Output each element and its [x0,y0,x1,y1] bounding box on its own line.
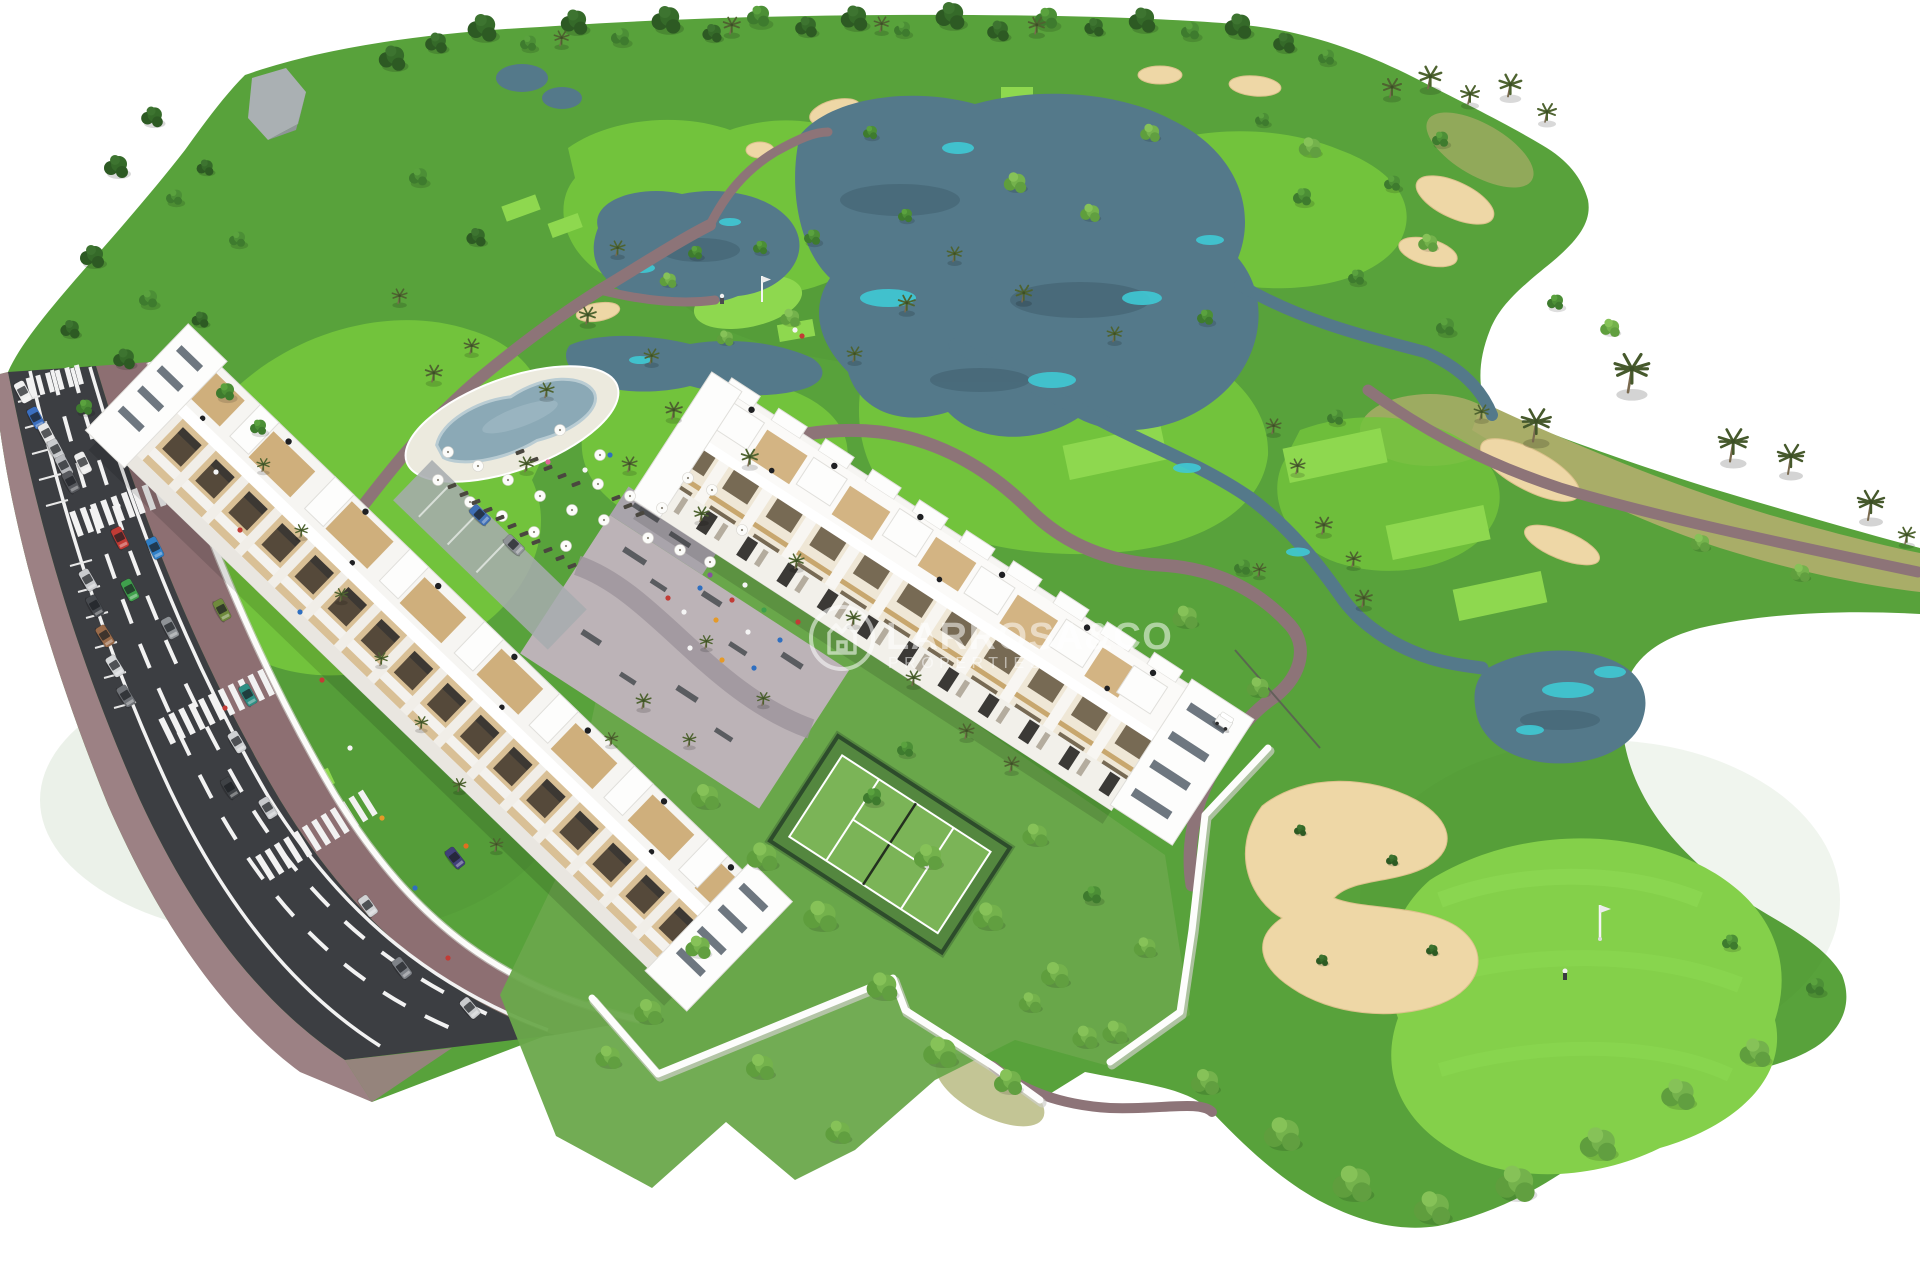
palm-tree [1538,104,1556,128]
person [379,815,384,820]
person [222,705,227,710]
person [707,572,712,577]
golfer-practice-green [720,294,724,304]
tree [468,14,500,43]
watermark-subtitle: PROPERTIES [888,655,1046,672]
parasol [657,503,668,514]
person [719,657,724,662]
person [412,885,417,890]
parasol [555,425,566,436]
person [742,582,747,587]
person [347,745,352,750]
person [697,585,702,590]
palm-tree [1858,491,1884,527]
parasol [593,479,604,490]
parasol [443,447,454,458]
palm-tree [1719,430,1748,469]
tree [141,107,165,129]
person [681,609,686,614]
parasol [595,450,606,461]
palm-tree [1461,86,1479,110]
palm-tree [1420,67,1442,95]
golfer-main-green [1563,969,1568,981]
tree [104,155,131,179]
putting-green-main [1388,838,1781,1174]
aerial-render-golf-resort: LARROSA&CO PROPERTIES [0,0,1920,1280]
parasol [707,485,718,496]
person [777,637,782,642]
person [213,469,218,474]
person [687,645,692,650]
person [792,327,797,332]
person [799,333,804,338]
parasol [433,475,444,486]
palm-tree [1615,355,1649,401]
tree [1547,295,1566,313]
person [607,452,612,457]
person [319,677,324,682]
palm-tree [1778,445,1804,481]
person [795,619,800,624]
tree [1600,319,1621,337]
person [445,955,450,960]
person [545,459,550,464]
parasol [473,461,484,472]
parasol [561,541,572,552]
parasol [675,545,686,556]
watermark-title: LARROSA&CO [886,616,1173,658]
parasol [529,527,540,538]
parasol [625,491,636,502]
person [463,843,468,848]
parasol [599,515,610,526]
parasol [705,557,716,568]
parasol [737,525,748,536]
parasol [683,473,694,484]
person [713,617,718,622]
parasol [535,491,546,502]
site-plan-3d-render: LARROSA&CO PROPERTIES [0,0,1920,1280]
parasol [503,475,514,486]
person [297,609,302,614]
palm-tree [1899,528,1915,549]
person [729,597,734,602]
person [761,607,766,612]
person [745,629,750,634]
parasol [643,533,654,544]
person [751,665,756,670]
person [582,467,587,472]
parasol [567,505,578,516]
person [665,595,670,600]
palm-tree [1500,75,1522,103]
person [115,503,120,508]
person [237,527,242,532]
